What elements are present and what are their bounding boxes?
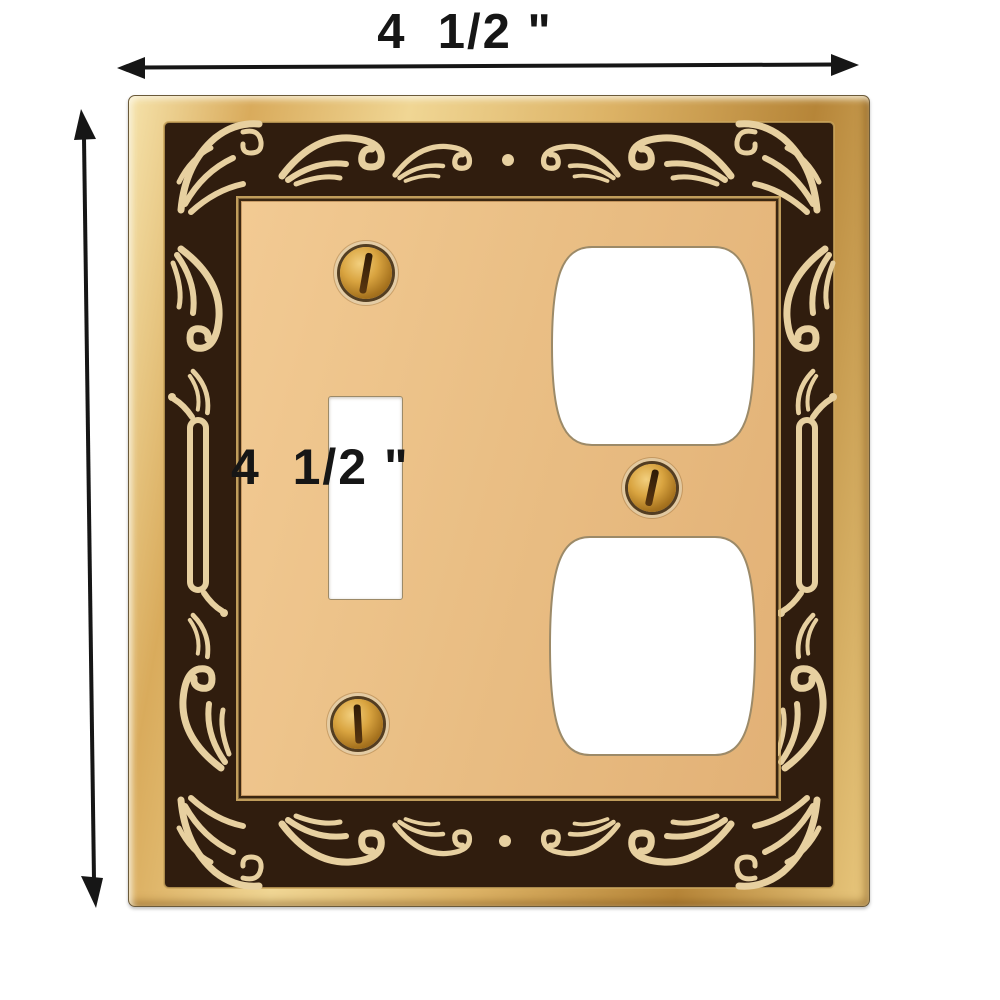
screw-bottom: [333, 699, 383, 749]
arrowhead-left-icon: [117, 57, 145, 79]
product-dimension-diagram: 4 1/2 " 4 1/2 ": [0, 0, 1000, 1000]
arrow-line: [84, 138, 94, 880]
width-dimension-label: 4 1/2 ": [340, 4, 590, 60]
toggle-switch-opening: [328, 396, 403, 600]
screw-slot: [353, 704, 362, 743]
height-dimension-label: 4 1/2 ": [231, 438, 410, 496]
screw-top: [340, 247, 392, 299]
screw-slot: [645, 469, 660, 507]
arrowhead-up-icon: [74, 109, 96, 140]
arrowhead-right-icon: [831, 54, 859, 76]
arrow-line: [140, 65, 835, 68]
outlet-opening-bottom: [546, 533, 759, 759]
screw-slot: [359, 252, 373, 293]
wall-plate: [128, 95, 870, 907]
screw-middle: [628, 464, 676, 512]
outlet-opening-top: [548, 243, 758, 449]
arrowhead-down-icon: [81, 876, 103, 908]
